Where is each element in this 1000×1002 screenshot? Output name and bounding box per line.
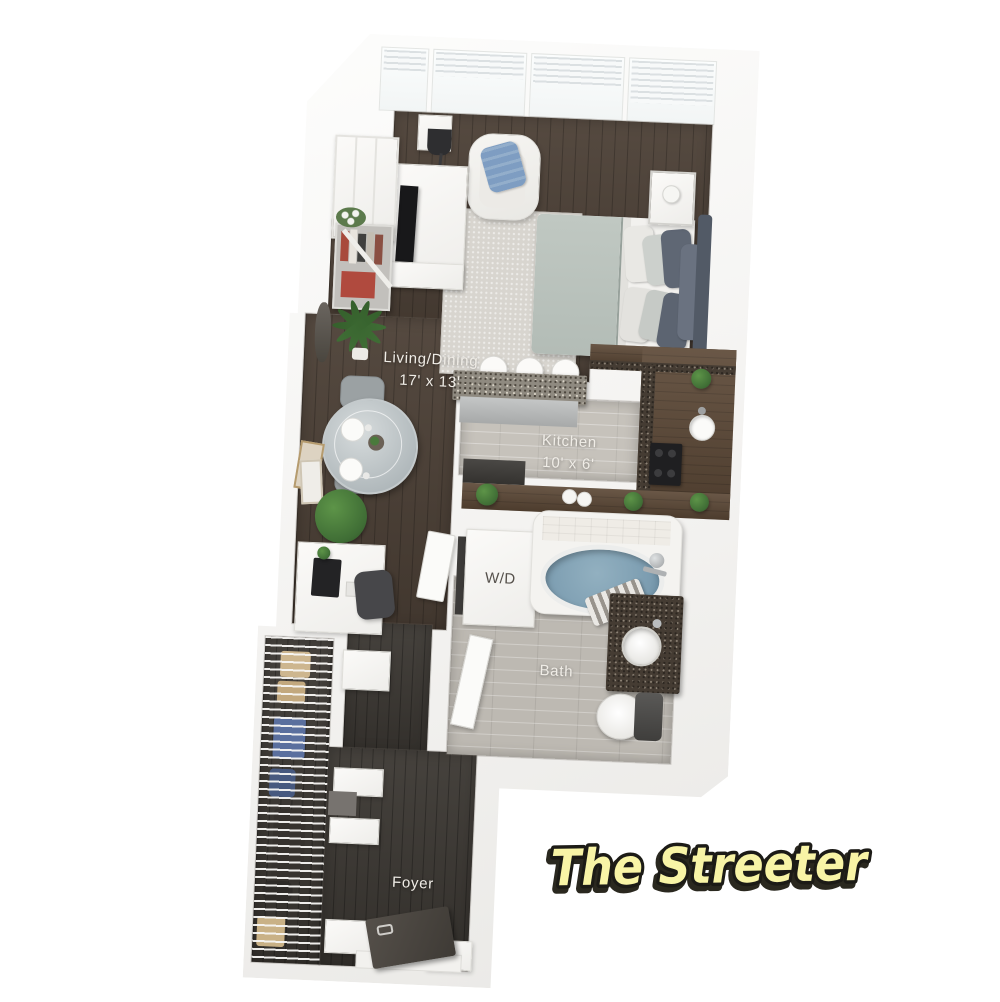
breakfast-bar-panel [459,396,578,427]
plan-title-text: The Streeter [550,834,870,898]
console-drawers [389,261,464,290]
plan-title: The Streeter The Streeter The Streeter [550,816,940,920]
wire-shelving [251,636,333,965]
page: { "plan_title": "The Streeter", "rooms":… [0,0,1000,1000]
washer-dryer: W/D [462,529,538,628]
desk-chair [353,569,395,620]
bed-blanket [531,213,624,357]
foyer-cabinet [328,791,357,816]
monitor [311,558,342,598]
spiky-plant [328,291,391,364]
door-handle [376,924,393,937]
window-pane [431,49,528,117]
toilet-tank [633,692,663,741]
window-pane [379,47,430,113]
floor-lamp-shade [427,129,452,156]
window-pane [626,57,717,125]
foyer-shelf [341,649,391,691]
leaning-art-frame [299,459,323,504]
dishwasher [463,458,526,485]
foyer-shelf [329,817,380,845]
stove [649,443,683,486]
washer-dryer-label: W/D [485,569,516,587]
window-pane [529,53,626,121]
